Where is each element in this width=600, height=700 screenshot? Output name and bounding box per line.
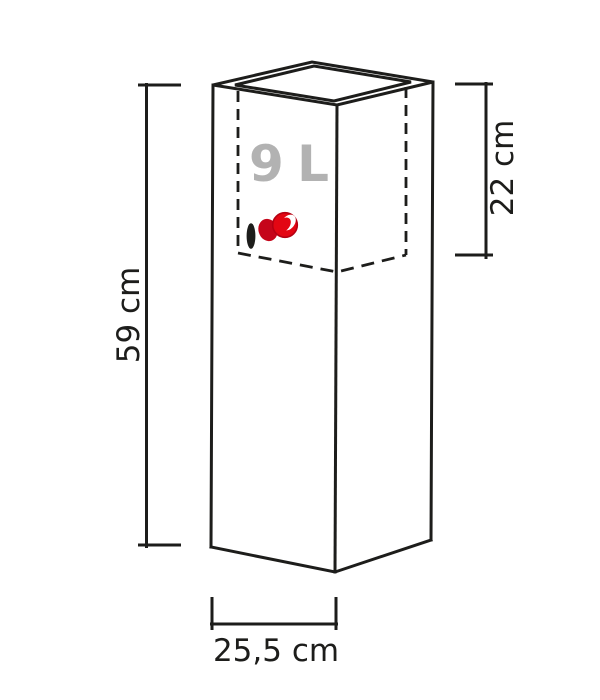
- volume-label: 9 L: [249, 135, 328, 193]
- box-left-edge: [211, 85, 213, 547]
- width-dimension-line: [210, 597, 338, 630]
- top-rim-inner-edge: [235, 66, 411, 101]
- water-level-indicator-icon: [255, 212, 298, 244]
- drainage-hole-icon: [247, 223, 256, 249]
- insert-depth-dimension-label: 22 cm: [485, 120, 521, 217]
- width-dimension-label: 25,5 cm: [213, 633, 339, 669]
- planter-dimension-diagram: 9 L 59 cm 22 cm 25,5 cm: [0, 0, 600, 700]
- height-dimension-label: 59 cm: [111, 267, 147, 364]
- diagram-svg: 9 L 59 cm 22 cm 25,5 cm: [0, 0, 600, 700]
- box-bottom-edges: [211, 540, 431, 572]
- box-right-edge: [431, 82, 433, 540]
- box-front-edge: [335, 105, 337, 572]
- liner-bottom-dashed-edge: [238, 253, 406, 272]
